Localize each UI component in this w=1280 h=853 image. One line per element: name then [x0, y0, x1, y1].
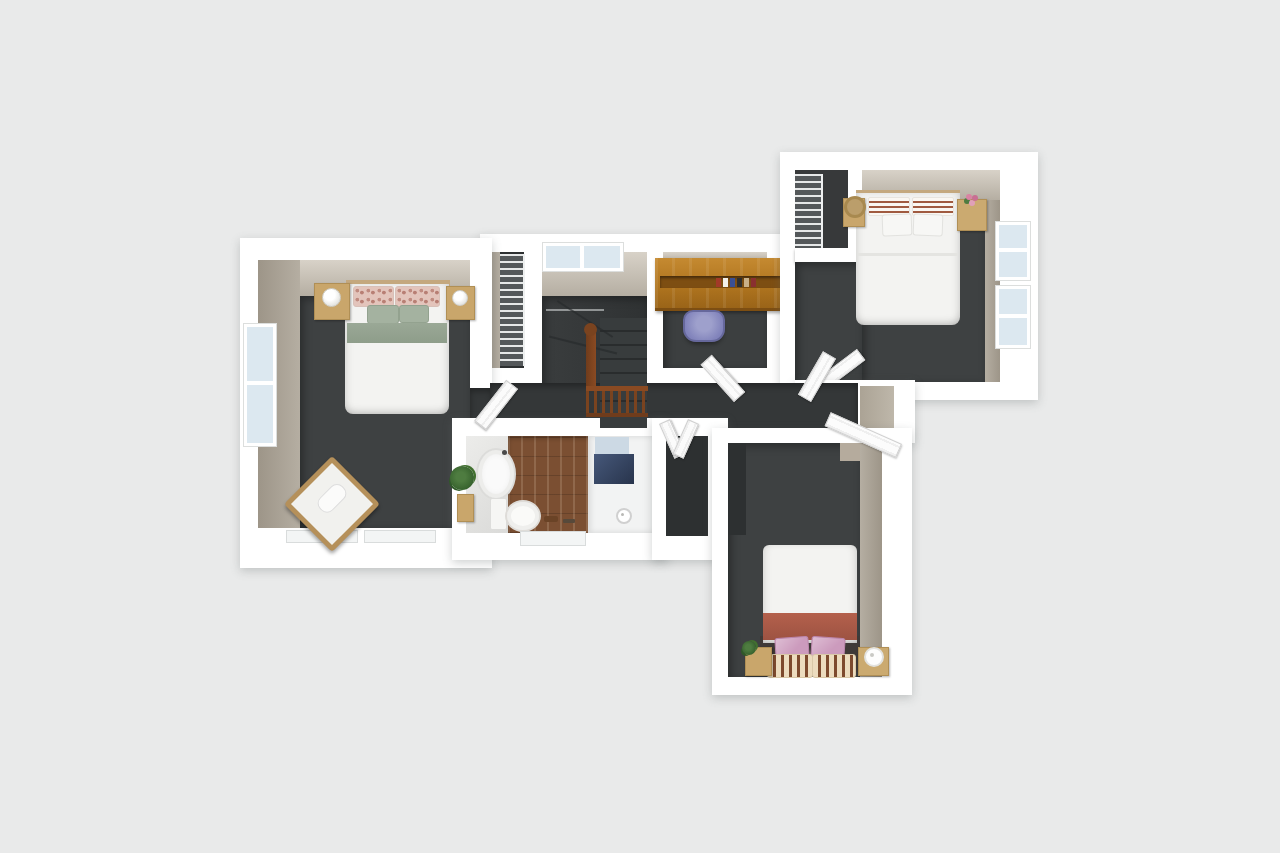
bathroom-window — [520, 531, 586, 546]
master-lamp-right — [452, 290, 468, 306]
master-window-left-mullion — [247, 381, 273, 385]
master-sage-pillow-right — [399, 305, 429, 323]
office-desk — [655, 258, 788, 311]
bedroom2-pink-flowers — [966, 194, 972, 200]
bedroom2-dresser — [957, 199, 987, 231]
bedroom2-duvet-fold — [858, 253, 958, 256]
toilet-bowl — [505, 500, 541, 532]
book-maroon — [751, 278, 756, 287]
bedroom2-window-upper-mullion — [999, 248, 1027, 252]
bedroom2-basket — [844, 196, 866, 218]
book-red — [716, 278, 721, 287]
shower-drain — [616, 508, 632, 524]
bedroom2-window-lower-mullion — [999, 314, 1027, 318]
bedroom3-plant — [742, 641, 756, 655]
sink-faucet — [502, 450, 507, 455]
bedroom2-white-pillow-right — [913, 213, 944, 236]
bedroom3-entry-shadow — [728, 443, 746, 535]
bathroom-floor-items — [544, 516, 558, 522]
master-window-left — [244, 324, 276, 446]
bedroom3-terracotta-runner — [763, 613, 857, 640]
book-blue — [730, 278, 735, 287]
stair-newel-post — [586, 330, 596, 390]
landing-window — [543, 243, 623, 271]
master-armchair-bolster — [314, 481, 349, 516]
master-floral-pillow-right — [395, 286, 440, 307]
room-block-bedroom-3 — [712, 428, 912, 695]
bedroom2-white-pillow-left — [882, 213, 913, 236]
book-white — [723, 278, 728, 287]
office-chair — [683, 310, 725, 342]
shower-enclosure — [588, 436, 656, 533]
master-plant-console — [457, 494, 474, 522]
landing-window-mullion — [580, 246, 584, 268]
bedroom3-round-lamp — [864, 647, 884, 667]
stair-banister — [586, 386, 648, 417]
stair-newel-knob — [584, 323, 597, 336]
bathroom-sink — [476, 448, 516, 500]
master-sage-blanket — [347, 323, 447, 343]
master-window-bottom-right — [364, 530, 436, 543]
master-sage-pillow-left — [367, 305, 399, 324]
floor-plan-canvas — [0, 0, 1280, 853]
bedroom2-window-lower — [996, 286, 1030, 348]
room-block-bathroom — [452, 418, 668, 560]
book-tan — [744, 278, 749, 287]
book-black — [737, 278, 742, 287]
master-floral-pillow-left — [353, 286, 394, 307]
master-plant — [450, 466, 474, 490]
master-lamp-left — [322, 288, 341, 307]
wire-shelving-landing-closet — [500, 254, 525, 366]
bedroom2-window-upper — [996, 222, 1030, 280]
bedroom3-striped-pillow-right — [812, 654, 856, 678]
shower-glass-panel-top — [595, 437, 629, 454]
bedroom3-wall-face-right — [860, 443, 882, 677]
bedroom3-striped-pillow-left — [767, 654, 813, 678]
shower-glass-panel — [594, 454, 634, 484]
